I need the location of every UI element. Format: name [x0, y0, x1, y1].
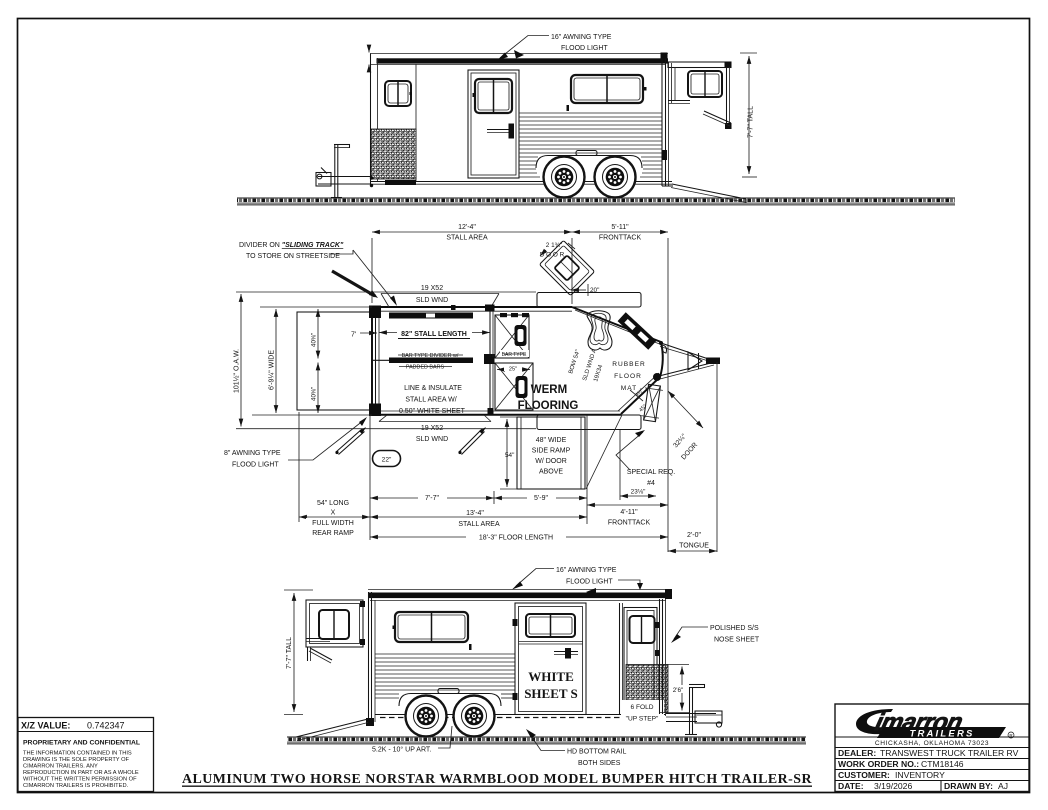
svg-text:LINE & INSULATE: LINE & INSULATE — [404, 385, 462, 392]
svg-text:19 X52: 19 X52 — [421, 285, 443, 292]
svg-text:DIVIDER ON "SLIDING TRACK": DIVIDER ON "SLIDING TRACK" — [239, 242, 344, 249]
svg-text:INVENTORY: INVENTORY — [895, 770, 945, 780]
svg-text:SLD WND: SLD WND — [416, 436, 448, 443]
svg-text:POLISHED S/S: POLISHED S/S — [710, 625, 759, 632]
svg-text:48" WIDE: 48" WIDE — [536, 437, 567, 444]
svg-text:WERM: WERM — [531, 384, 567, 396]
svg-text:FLOOR: FLOOR — [614, 373, 642, 380]
svg-text:5'-9": 5'-9" — [534, 495, 548, 502]
svg-text:ALUMINUM TWO HORSE NORSTAR WAR: ALUMINUM TWO HORSE NORSTAR WARMBLOOD MOD… — [182, 772, 813, 787]
svg-text:20": 20" — [590, 287, 599, 294]
svg-text:2'-0": 2'-0" — [687, 532, 701, 539]
svg-text:101½" O.A.W.: 101½" O.A.W. — [233, 349, 241, 393]
svg-text:WITHOUT THE WRITTEN PERMISSION: WITHOUT THE WRITTEN PERMISSION OF — [23, 777, 137, 783]
svg-text:3/19/2026: 3/19/2026 — [874, 781, 912, 791]
svg-text:STALL AREA: STALL AREA — [458, 521, 500, 528]
svg-text:NOSE SHEET: NOSE SHEET — [714, 637, 760, 644]
svg-text:FLOORING: FLOORING — [518, 400, 579, 412]
svg-text:54" LONG: 54" LONG — [317, 500, 349, 507]
svg-text:REAR RAMP: REAR RAMP — [312, 530, 354, 537]
svg-text:2'6": 2'6" — [673, 687, 684, 694]
svg-text:MAT: MAT — [621, 385, 637, 392]
svg-text:2 1¾": 2 1¾" — [546, 242, 562, 249]
svg-text:FLOOD LIGHT: FLOOD LIGHT — [232, 462, 279, 469]
svg-text:STALL AREA W/: STALL AREA W/ — [405, 397, 456, 404]
svg-text:FRONTTACK: FRONTTACK — [599, 235, 642, 242]
svg-text:X/Z VALUE:: X/Z VALUE: — [21, 721, 70, 731]
svg-text:6'-9¼" WIDE: 6'-9¼" WIDE — [269, 350, 276, 390]
svg-text:CHICKASHA, OKLAHOMA 73023: CHICKASHA, OKLAHOMA 73023 — [875, 740, 989, 747]
svg-text:SLD WND: SLD WND — [416, 297, 448, 304]
svg-text:FLOOD LIGHT: FLOOD LIGHT — [561, 45, 608, 52]
svg-text:BAR TYPE: BAR TYPE — [502, 352, 527, 358]
svg-text:40⅝": 40⅝" — [311, 387, 318, 401]
svg-text:DRAWN BY:: DRAWN BY: — [944, 781, 993, 791]
svg-text:DRAWING IS THE SOLE PROPERTY O: DRAWING IS THE SOLE PROPERTY OF — [23, 757, 130, 763]
svg-text:54": 54" — [505, 452, 514, 459]
svg-text:13'-4": 13'-4" — [466, 510, 484, 517]
svg-text:SPECIAL REQ.: SPECIAL REQ. — [627, 469, 675, 476]
svg-text:18'-3" FLOOR LENGTH: 18'-3" FLOOR LENGTH — [479, 535, 553, 542]
svg-text:16" AWNING TYPE: 16" AWNING TYPE — [551, 34, 612, 41]
svg-text:7'-7": 7'-7" — [425, 495, 439, 502]
svg-text:7': 7' — [351, 332, 356, 339]
svg-text:PROPRIETARY AND CONFIDENTIAL: PROPRIETARY AND CONFIDENTIAL — [23, 740, 140, 747]
svg-text:DATE:: DATE: — [838, 781, 864, 791]
svg-text:82" STALL LENGTH: 82" STALL LENGTH — [401, 331, 467, 338]
svg-text:22": 22" — [382, 457, 392, 464]
svg-text:AJ: AJ — [998, 781, 1008, 791]
svg-text:7'-7" TALL: 7'-7" TALL — [286, 637, 293, 669]
svg-text:8" AWNING TYPE: 8" AWNING TYPE — [224, 450, 281, 457]
svg-text:THE INFORMATION CONTAINED IN T: THE INFORMATION CONTAINED IN THIS — [23, 751, 132, 757]
svg-text:40⅝": 40⅝" — [311, 333, 318, 347]
svg-text:SIDE RAMP: SIDE RAMP — [532, 448, 571, 455]
svg-text:W/ DOOR: W/ DOOR — [535, 458, 567, 465]
svg-text:SHEET S: SHEET S — [524, 686, 578, 701]
svg-text:TRAILERS: TRAILERS — [909, 729, 974, 740]
svg-text:WORK ORDER NO.:: WORK ORDER NO.: — [838, 759, 919, 769]
svg-text:5.2K - 10° UP ART.: 5.2K - 10° UP ART. — [372, 746, 431, 754]
svg-text:TONGUE: TONGUE — [679, 543, 709, 550]
svg-text:5'-11": 5'-11" — [611, 224, 629, 231]
svg-text:X: X — [331, 510, 336, 517]
svg-text:PADDED BARS: PADDED BARS — [406, 365, 445, 371]
svg-text:BOTH SIDES: BOTH SIDES — [578, 760, 621, 767]
svg-text:WHITE: WHITE — [528, 669, 574, 684]
svg-text:23⅛": 23⅛" — [631, 489, 646, 496]
svg-text:DEALER:: DEALER: — [838, 748, 876, 758]
svg-text:"UP STEP": "UP STEP" — [626, 716, 659, 723]
svg-text:RUBBER: RUBBER — [612, 361, 645, 368]
svg-text:6 FOLD: 6 FOLD — [630, 704, 653, 711]
svg-text:12'-4": 12'-4" — [458, 224, 476, 231]
svg-text:25": 25" — [509, 367, 517, 373]
svg-text:HD BOTTOM RAIL: HD BOTTOM RAIL — [567, 749, 626, 756]
svg-text:0.742347: 0.742347 — [87, 721, 125, 731]
svg-text:FLOOD LIGHT: FLOOD LIGHT — [566, 579, 613, 586]
svg-text:CUSTOMER:: CUSTOMER: — [838, 770, 890, 780]
svg-text:4'-11": 4'-11" — [620, 509, 638, 516]
svg-text:CTM18146: CTM18146 — [921, 759, 964, 769]
svg-text:ABOVE: ABOVE — [539, 469, 563, 476]
svg-text:FULL WIDTH: FULL WIDTH — [312, 520, 354, 527]
svg-text:STALL AREA: STALL AREA — [446, 235, 488, 242]
svg-text:7'-7" TALL: 7'-7" TALL — [748, 106, 755, 138]
svg-text:REPRODUCTION IN PART OR AS A W: REPRODUCTION IN PART OR AS A WHOLE — [23, 770, 139, 776]
svg-text:TO STORE ON STREETSIDE: TO STORE ON STREETSIDE — [246, 253, 340, 260]
svg-text:#4: #4 — [647, 480, 655, 487]
svg-text:CIMARRON TRAILERS IS PROHIBITE: CIMARRON TRAILERS IS PROHIBITED. — [23, 783, 129, 789]
svg-text:16" AWNING TYPE: 16" AWNING TYPE — [556, 567, 617, 574]
svg-text:CIMARRON TRAILERS. ANY: CIMARRON TRAILERS. ANY — [23, 764, 98, 770]
svg-text:TRANSWEST TRUCK TRAILER RV: TRANSWEST TRUCK TRAILER RV — [880, 748, 1019, 758]
svg-text:0.50" WHITE SHEET: 0.50" WHITE SHEET — [399, 408, 466, 415]
svg-text:FRONTTACK: FRONTTACK — [608, 520, 651, 527]
